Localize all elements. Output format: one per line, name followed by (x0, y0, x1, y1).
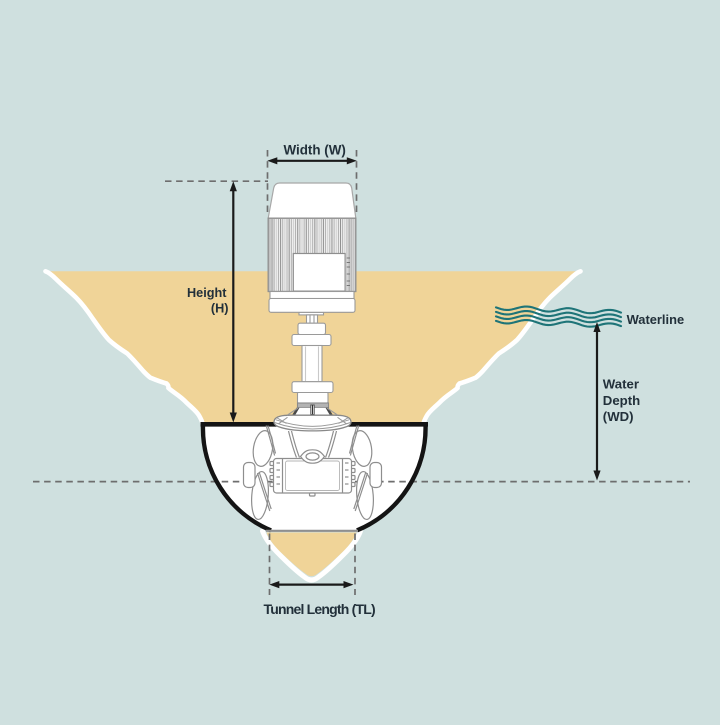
svg-text:Depth: Depth (603, 393, 640, 408)
svg-text:Tunnel Length (TL): Tunnel Length (TL) (264, 601, 375, 617)
svg-text:(WD): (WD) (603, 409, 634, 424)
svg-text:Waterline: Waterline (627, 312, 685, 327)
svg-text:Water: Water (603, 377, 639, 392)
svg-text:(H): (H) (211, 301, 229, 315)
svg-text:Width (W): Width (W) (284, 143, 346, 158)
svg-text:Height: Height (187, 286, 227, 300)
